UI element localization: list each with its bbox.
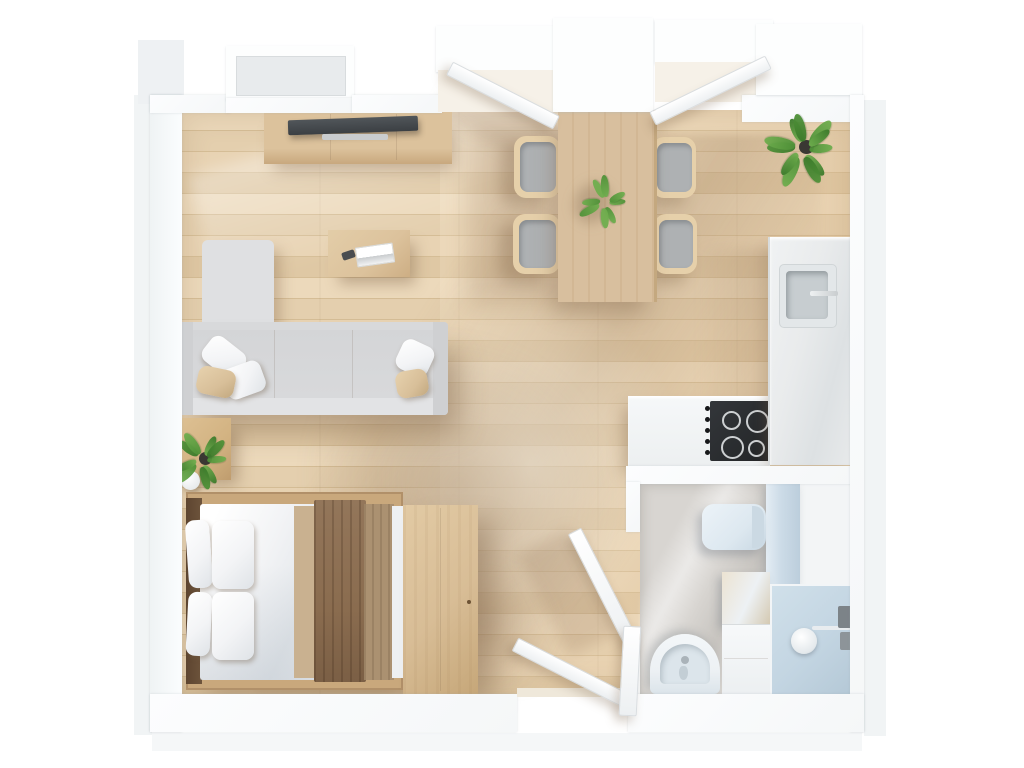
exterior-top-right bbox=[756, 24, 862, 95]
wall-bottom-left bbox=[150, 694, 517, 732]
toilet-tank bbox=[752, 506, 764, 548]
sofa-arm-right bbox=[433, 322, 448, 415]
throw-blanket-light bbox=[364, 504, 394, 680]
cooktop-knob bbox=[705, 450, 710, 455]
faucet bbox=[810, 291, 838, 296]
storage-panel bbox=[766, 482, 800, 584]
window-bay-ledge bbox=[236, 56, 346, 96]
bed-pillow bbox=[185, 591, 212, 656]
chair-cushion bbox=[519, 220, 556, 268]
burner bbox=[721, 436, 744, 459]
bed-pillow bbox=[212, 521, 254, 589]
basin-drain bbox=[679, 666, 688, 680]
sofa-chaise bbox=[202, 240, 274, 332]
basin-faucet bbox=[681, 656, 689, 664]
bathroom-bright-corner bbox=[800, 482, 852, 584]
burner bbox=[722, 411, 741, 430]
bathroom-wall-top bbox=[626, 466, 852, 484]
wardrobe-handle bbox=[467, 600, 471, 604]
sofa-seam bbox=[352, 330, 353, 398]
soundbar bbox=[322, 134, 388, 140]
chair-cushion bbox=[657, 143, 692, 192]
wardrobe-seam bbox=[440, 508, 441, 691]
bed-pillow bbox=[185, 519, 214, 589]
cooktop-knob bbox=[705, 439, 710, 444]
chair-cushion bbox=[659, 220, 693, 268]
floor-plan-render bbox=[0, 0, 1024, 768]
wall-bottom-right bbox=[628, 694, 864, 732]
bed-pillow bbox=[212, 592, 254, 660]
sofa-front-edge bbox=[193, 398, 433, 415]
wall-left bbox=[150, 95, 182, 732]
exterior-band-right bbox=[864, 100, 886, 736]
burner bbox=[746, 410, 769, 433]
burner bbox=[748, 440, 765, 457]
chair-cushion bbox=[520, 142, 556, 192]
cooktop-knob bbox=[705, 428, 710, 433]
center-pier bbox=[553, 18, 653, 112]
sofa-seam bbox=[274, 330, 275, 398]
bathroom-wall-left-upper bbox=[626, 482, 640, 532]
cooktop-knob bbox=[705, 417, 710, 422]
wall-under-window bbox=[226, 98, 354, 113]
wall-right bbox=[850, 95, 864, 732]
vanity-drawers bbox=[722, 624, 770, 695]
mattress-edge bbox=[392, 506, 403, 678]
vanity-cabinet bbox=[722, 572, 770, 624]
throw-blanket-dark bbox=[314, 500, 366, 682]
cooktop-knob bbox=[705, 406, 710, 411]
wall-top-segment-2 bbox=[352, 95, 442, 113]
wall-top-segment-1 bbox=[150, 95, 230, 113]
exterior-band-bottom bbox=[152, 733, 862, 751]
vanity-drawer-line bbox=[724, 658, 768, 659]
shower-drain bbox=[791, 628, 817, 654]
